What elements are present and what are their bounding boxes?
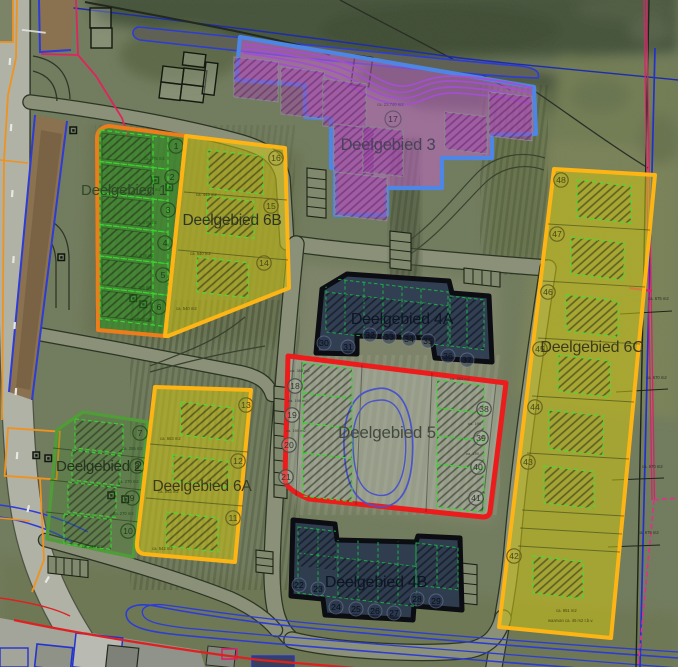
svg-text:16: 16 (271, 153, 281, 163)
svg-text:15: 15 (266, 201, 276, 211)
svg-text:34: 34 (404, 334, 414, 344)
svg-text:32: 32 (365, 330, 375, 340)
svg-text:20: 20 (284, 440, 294, 450)
svg-text:41: 41 (471, 493, 481, 503)
svg-text:ca. 270 m2: ca. 270 m2 (118, 479, 139, 484)
svg-text:ca. 670 m2: ca. 670 m2 (642, 464, 663, 469)
svg-text:ca. 375 m2: ca. 375 m2 (131, 285, 152, 290)
svg-text:ca. 190 m2: ca. 190 m2 (288, 398, 309, 403)
svg-text:30: 30 (319, 338, 329, 348)
svg-text:ca. 670 m2: ca. 670 m2 (646, 375, 667, 380)
svg-text:48: 48 (556, 175, 566, 185)
svg-text:44: 44 (530, 402, 540, 412)
svg-text:36: 36 (443, 351, 453, 361)
svg-text:11: 11 (228, 513, 237, 523)
svg-text:Deelgebied 1: Deelgebied 1 (81, 182, 167, 199)
svg-text:Deelgebied 5: Deelgebied 5 (338, 423, 436, 442)
svg-text:17: 17 (388, 114, 398, 124)
svg-text:47: 47 (552, 229, 562, 239)
svg-text:Deelgebied 6C: Deelgebied 6C (540, 339, 643, 356)
svg-text:ca. 443 m2: ca. 443 m2 (196, 192, 217, 197)
svg-text:ca. 540 m2: ca. 540 m2 (176, 306, 197, 311)
svg-text:25: 25 (351, 604, 361, 614)
svg-text:18: 18 (290, 381, 300, 391)
svg-text:2: 2 (170, 172, 175, 182)
svg-text:ca. 190 m2: ca. 190 m2 (286, 428, 307, 433)
svg-text:42: 42 (509, 551, 519, 561)
svg-text:ca. 190: ca. 190 (468, 421, 482, 426)
svg-text:4: 4 (163, 238, 168, 248)
svg-text:12: 12 (233, 456, 243, 466)
svg-text:33: 33 (384, 332, 394, 342)
svg-text:37: 37 (462, 355, 472, 365)
svg-text:ca. 663 m2: ca. 663 m2 (160, 436, 181, 441)
svg-text:ca. 295 m2: ca. 295 m2 (82, 544, 103, 549)
svg-text:ca. 375 m2: ca. 375 m2 (136, 220, 157, 225)
svg-text:43: 43 (523, 457, 533, 467)
svg-text:19: 19 (287, 410, 297, 420)
svg-text:Deelgebied 3: Deelgebied 3 (341, 136, 436, 154)
svg-text:3: 3 (166, 205, 171, 215)
svg-text:39: 39 (476, 433, 486, 443)
svg-text:31: 31 (343, 342, 353, 352)
svg-text:21: 21 (281, 472, 291, 482)
svg-text:ca. 270 m2: ca. 270 m2 (113, 511, 134, 516)
svg-text:14: 14 (259, 258, 269, 268)
svg-text:26: 26 (370, 606, 380, 616)
svg-text:28: 28 (412, 594, 422, 604)
svg-text:40: 40 (473, 462, 483, 472)
svg-text:46: 46 (543, 287, 553, 297)
svg-text:35: 35 (423, 336, 433, 346)
svg-text:13: 13 (241, 400, 251, 410)
svg-text:ca. 375 m2: ca. 375 m2 (133, 253, 154, 258)
svg-text:ca. 23.740 m2: ca. 23.740 m2 (377, 102, 404, 107)
svg-text:Deelgebied 4B: Deelgebied 4B (325, 574, 427, 591)
svg-text:29: 29 (431, 596, 441, 606)
svg-text:ca. 951 m2: ca. 951 m2 (556, 608, 577, 613)
svg-text:ca. 675 m2: ca. 675 m2 (648, 296, 669, 301)
svg-text:waarvan ca. 45 m2 t.b.v.: waarvan ca. 45 m2 t.b.v. (548, 618, 593, 623)
svg-text:1: 1 (174, 141, 179, 151)
svg-text:23: 23 (313, 584, 323, 594)
svg-text:22: 22 (294, 580, 304, 590)
svg-text:7: 7 (138, 428, 143, 438)
svg-text:Deelgebied 2: Deelgebied 2 (56, 458, 142, 475)
svg-text:ca. 675 m2: ca. 675 m2 (638, 530, 659, 535)
svg-text:ca. 375 m2: ca. 375 m2 (127, 317, 148, 322)
svg-text:Deelgebied 4A: Deelgebied 4A (351, 311, 454, 328)
svg-text:ca. 190: ca. 190 (466, 451, 480, 456)
svg-text:ca. 255 m2: ca. 255 m2 (122, 446, 143, 451)
svg-text:6: 6 (157, 302, 162, 312)
svg-text:Deelgebied 6A: Deelgebied 6A (152, 478, 252, 495)
svg-text:ca. 383 m2: ca. 383 m2 (450, 376, 471, 381)
svg-text:ca. 540 m2: ca. 540 m2 (190, 251, 211, 256)
svg-text:Deelgebied 6B: Deelgebied 6B (182, 212, 281, 229)
svg-text:10: 10 (123, 526, 133, 536)
svg-text:ca. 542 m2: ca. 542 m2 (152, 546, 173, 551)
svg-text:38: 38 (479, 404, 489, 414)
svg-text:24: 24 (331, 602, 341, 612)
svg-text:9: 9 (130, 493, 135, 503)
svg-text:5: 5 (161, 270, 166, 280)
svg-text:ca. 380 m2: ca. 380 m2 (290, 368, 311, 373)
svg-text:27: 27 (389, 608, 399, 618)
svg-text:ca. 375 m2: ca. 375 m2 (144, 156, 165, 161)
